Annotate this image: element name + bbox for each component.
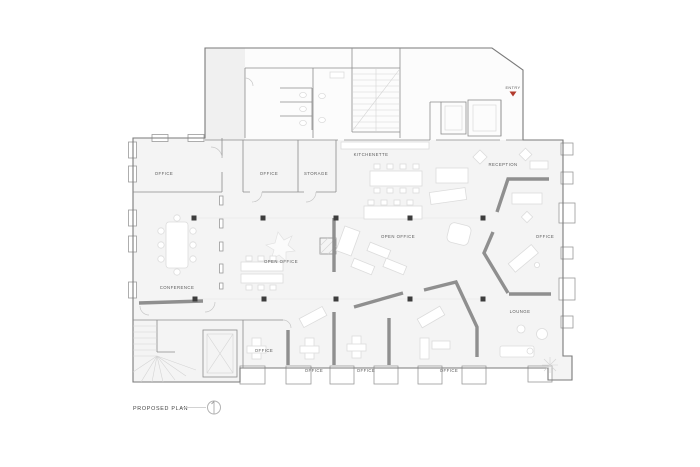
room-label-open-office-center: OPEN OFFICE <box>381 234 415 239</box>
room-label-reception: RECEPTION <box>488 162 517 167</box>
room-label-storage: STORAGE <box>304 171 328 176</box>
entry-label: ENTRY <box>505 85 520 90</box>
floor-plan-drawing: OFFICE OFFICE STORAGE KITCHENETTE RECEPT… <box>0 0 700 467</box>
room-label-office-top-left: OFFICE <box>155 171 173 176</box>
scale-indicator-icon <box>208 401 221 415</box>
room-label-office-south-3: OFFICE <box>440 368 458 373</box>
title-block: PROPOSED PLAN <box>133 401 221 415</box>
room-label-office-south-1: OFFICE <box>305 368 323 373</box>
floor-plan-page: OFFICE OFFICE STORAGE KITCHENETTE RECEPT… <box>0 0 700 467</box>
room-label-lounge: LOUNGE <box>510 309 531 314</box>
floor-fill <box>133 48 572 382</box>
room-label-office-south-large: OFFICE <box>255 348 273 353</box>
room-label-conference: CONFERENCE <box>160 285 195 290</box>
drawing-title: PROPOSED PLAN <box>133 406 188 412</box>
room-label-open-office-west: OPEN OFFICE <box>264 259 298 264</box>
room-label-kitchenette: KITCHENETTE <box>354 152 389 157</box>
room-label-office-east: OFFICE <box>536 234 554 239</box>
room-label-office-small: OFFICE <box>260 171 278 176</box>
room-label-office-south-2: OFFICE <box>357 368 375 373</box>
